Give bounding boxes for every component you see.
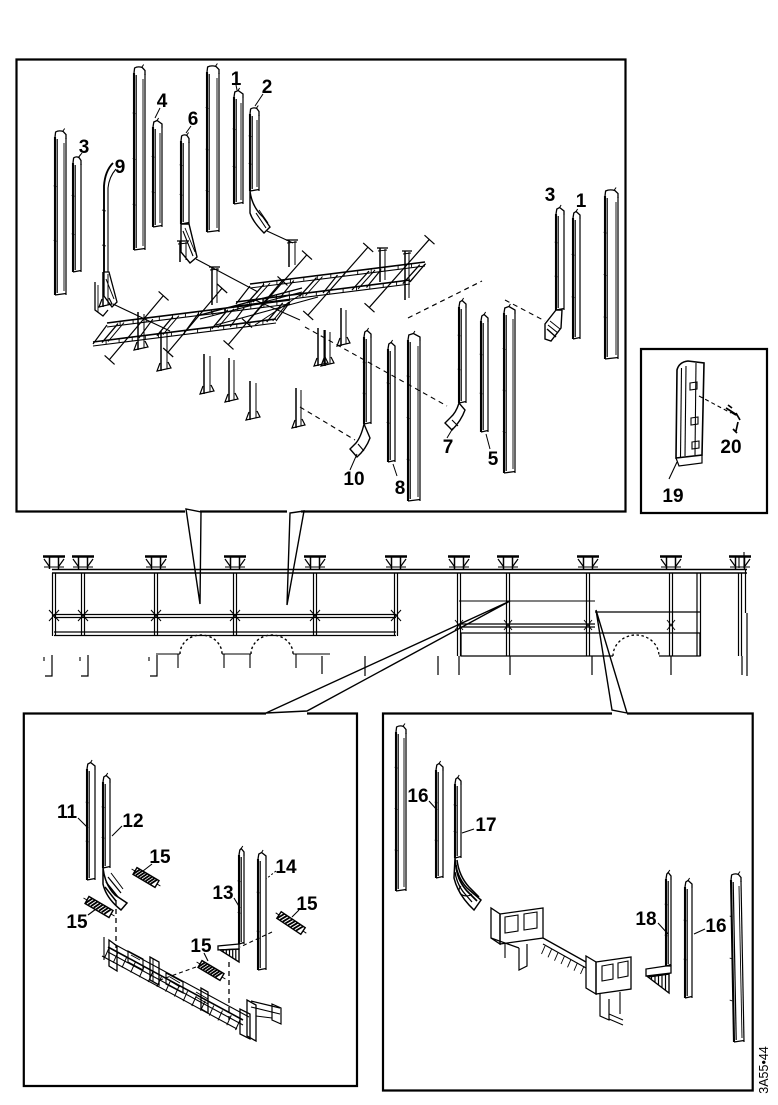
svg-text:8: 8 xyxy=(395,478,406,499)
svg-text:16: 16 xyxy=(705,916,726,937)
svg-text:7: 7 xyxy=(443,437,454,458)
svg-text:19: 19 xyxy=(662,486,683,507)
svg-text:18: 18 xyxy=(635,909,656,930)
svg-text:2: 2 xyxy=(262,77,273,98)
svg-text:11: 11 xyxy=(57,802,78,823)
svg-text:16: 16 xyxy=(407,786,428,807)
svg-text:15: 15 xyxy=(149,847,171,868)
svg-text:15: 15 xyxy=(190,936,212,957)
svg-text:10: 10 xyxy=(343,469,364,490)
svg-text:15: 15 xyxy=(66,912,88,933)
svg-text:9: 9 xyxy=(115,157,126,178)
svg-text:6: 6 xyxy=(188,109,199,130)
svg-text:1: 1 xyxy=(576,191,587,212)
svg-text:14: 14 xyxy=(275,857,297,878)
svg-text:5: 5 xyxy=(488,449,499,470)
svg-text:3: 3 xyxy=(545,185,556,206)
svg-text:13: 13 xyxy=(212,883,233,904)
svg-text:20: 20 xyxy=(720,437,741,458)
svg-text:12: 12 xyxy=(122,811,143,832)
svg-text:15: 15 xyxy=(296,894,318,915)
svg-text:3A55•44: 3A55•44 xyxy=(757,1046,771,1094)
svg-text:17: 17 xyxy=(475,815,496,836)
svg-text:4: 4 xyxy=(157,91,168,112)
